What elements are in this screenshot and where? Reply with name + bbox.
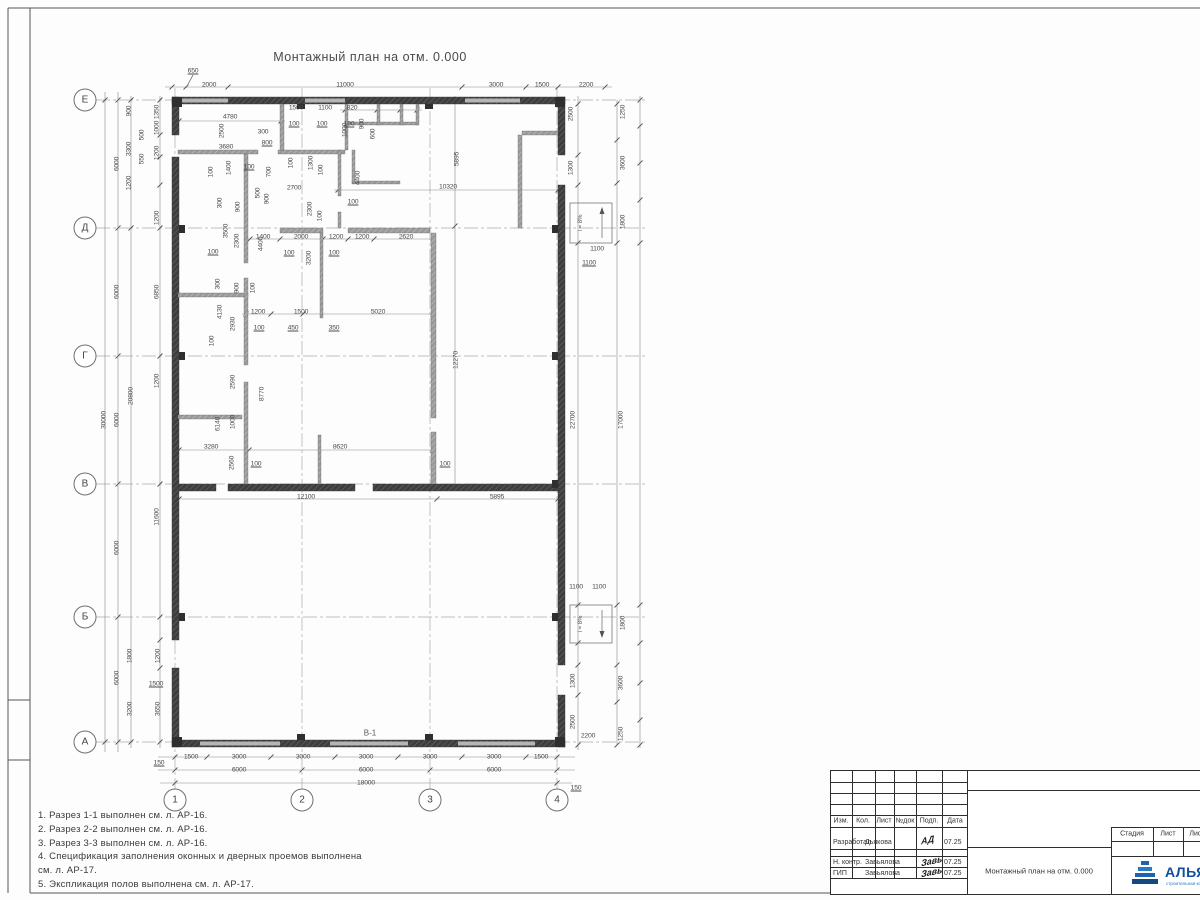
dimension-label: 11000 [336, 82, 353, 89]
dimension-label: 100 [317, 211, 324, 222]
dimension-label: 1100 [590, 246, 604, 253]
dimension-label: 4400 [355, 171, 362, 185]
dimension-label: 12270 [453, 351, 460, 369]
grid-axis-bubble: Д [74, 217, 97, 240]
page-title: Монтажный план на отм. 0.000 [273, 50, 467, 64]
dimension-label: 1350 [154, 105, 161, 119]
drawing-sheet: Монтажный план на отм. 0.000 65020001100… [0, 0, 1200, 900]
dimension-label: 22700 [570, 411, 577, 429]
tb-col-list: Лист [876, 818, 891, 825]
dimension-label: 1300 [308, 156, 315, 170]
note-line: 4. Спецификация заполнения оконных и две… [38, 850, 362, 864]
dimension-label: 20800 [128, 387, 135, 405]
dimension-label: 8770 [259, 387, 266, 401]
dimension-label: 12100 [297, 494, 315, 501]
dimension-label: 3200 [127, 702, 134, 716]
dimension-label: 1100 [569, 584, 583, 591]
dimension-label: 3600 [618, 676, 625, 690]
ramp-slope-label-bottom: i = 8% [578, 616, 584, 633]
dimension-label: 820 [347, 105, 358, 112]
grid-axis-bubble: Б [74, 606, 97, 629]
grid-axis-bubble: 3 [419, 789, 442, 812]
grid-axis-bubble: Г [74, 345, 97, 368]
dimension-label: 1100 [592, 584, 606, 591]
dimension-label: 900 [359, 119, 366, 130]
dimension-label: 100 [208, 249, 219, 256]
dimension-label: 1000 [342, 123, 349, 137]
dimension-label: 2620 [399, 234, 413, 241]
dimension-label: 1200 [251, 309, 265, 316]
dimension-label: 18000 [357, 780, 375, 787]
dimension-label: 6000 [114, 285, 121, 299]
dimension-label: 1250 [620, 105, 627, 119]
dimension-label: 3000 [232, 754, 246, 761]
dimension-label: 100 [254, 325, 265, 332]
dimension-label: 6000 [114, 541, 121, 555]
dimension-label: 8620 [333, 444, 347, 451]
dimension-label: 6000 [114, 671, 121, 685]
dimension-label: 600 [370, 129, 377, 140]
dimension-label: 1500 [294, 309, 308, 316]
dimension-label: 150 [154, 760, 165, 767]
dimension-label: 6000 [359, 767, 373, 774]
dimension-label: 3300 [126, 142, 133, 156]
dimension-label: 1200 [154, 146, 161, 160]
dimension-label: 350 [329, 325, 340, 332]
dimension-label: 2500 [219, 124, 226, 138]
dimension-label: 1800 [620, 616, 627, 630]
dimension-label: 6000 [114, 157, 121, 171]
dimension-label: 5895 [490, 494, 504, 501]
dimension-label: 1800 [127, 649, 134, 663]
dimension-label: 3680 [219, 144, 233, 151]
dimension-label: 2560 [229, 456, 236, 470]
dimension-label: 3200 [306, 251, 313, 265]
dimension-label: 100 [209, 336, 216, 347]
dimension-label: 1000 [154, 121, 161, 135]
alliance-logo-icon [1129, 859, 1161, 889]
dimension-label: 300 [215, 279, 222, 290]
dimension-label: 1100 [318, 105, 332, 112]
dimension-label: 30000 [101, 411, 108, 429]
dimension-label: 900 [234, 283, 241, 294]
dimension-label: 150 [571, 785, 582, 792]
dimension-label: 2000 [202, 82, 216, 89]
dimension-label: 3000 [296, 754, 310, 761]
note-line: 5. Экспликация полов выполнена см. л. АР… [38, 878, 362, 892]
note-line: см. л. АР-17. [38, 864, 362, 878]
alliance-logo-name: АЛЬЯНС [1165, 864, 1200, 880]
dimension-label: 300 [217, 198, 224, 209]
grid-axis-bubble: 4 [546, 789, 569, 812]
dimension-label: 3000 [423, 754, 437, 761]
dimension-label: 3500 [223, 224, 230, 238]
dimension-label: 6140 [215, 417, 222, 431]
notes-block: 1. Разрез 1-1 выполнен см. л. АР-16. 2. … [38, 809, 362, 892]
dimension-label: 800 [262, 140, 273, 147]
note-line: 2. Разрез 2-2 выполнен см. л. АР-16. [38, 823, 362, 837]
dimension-label: 900 [235, 202, 242, 213]
floor-mark-label: В-1 [364, 729, 376, 738]
dimension-label: 300 [258, 129, 269, 136]
dimension-label: 900 [264, 194, 271, 205]
dimension-label: 1200 [154, 374, 161, 388]
tb-col-data: Дата [947, 818, 963, 825]
dimension-label: 2000 [294, 234, 308, 241]
tb-col-ndok: №док [896, 818, 915, 825]
tb-col-podp: Подп. [920, 818, 939, 825]
dimension-label: 1200 [126, 176, 133, 190]
dimension-label: 100 [251, 461, 262, 468]
dimension-label: 6000 [232, 767, 246, 774]
dimension-label: 500 [255, 188, 262, 199]
dimension-label: 1100 [582, 260, 596, 267]
dimension-label: 2700 [287, 185, 301, 192]
tb-date: 07.25 [944, 839, 962, 846]
dimension-label: 1200 [329, 234, 343, 241]
dimension-label: 4780 [223, 114, 237, 121]
dimension-label: 1300 [570, 674, 577, 688]
dimension-label: 1400 [226, 161, 233, 175]
dimension-label: 100 [289, 121, 300, 128]
dimension-label: 900 [126, 106, 133, 117]
tb-date: 07.25 [944, 870, 962, 877]
tb-col-kol: Кол. [856, 818, 870, 825]
dimension-label: 100 [284, 250, 295, 257]
tb-doc-title: Монтажный план на отм. 0.000 [985, 867, 1093, 876]
tb-name: Завьялова [865, 859, 900, 866]
dimension-label: 2590 [230, 375, 237, 389]
dimension-label: 1200 [154, 211, 161, 225]
dimension-label: 10320 [439, 184, 457, 191]
grid-axis-bubble: В [74, 473, 97, 496]
ramps [186, 75, 612, 643]
dimension-label: 2200 [579, 82, 593, 89]
tb-sheets: Лист [1189, 831, 1200, 838]
dimension-label: 1200 [355, 234, 369, 241]
tb-name: Дьякова [865, 839, 892, 846]
dimension-label: 100 [250, 283, 257, 294]
tb-role: ГИП [833, 870, 847, 877]
dimension-label: 1800 [620, 215, 627, 229]
dimension-label: 1500 [534, 754, 548, 761]
dimension-label: 6000 [114, 413, 121, 427]
dimension-label: 5020 [371, 309, 385, 316]
dimension-label: 4130 [217, 305, 224, 319]
dimension-label: 100 [288, 158, 295, 169]
dimension-label: 3000 [489, 82, 503, 89]
dimension-label: 1500 [535, 82, 549, 89]
dimension-label: 1500 [289, 105, 303, 112]
dimension-label: 3600 [620, 156, 627, 170]
dimension-label: 450 [288, 325, 299, 332]
dimension-label: 2500 [568, 107, 575, 121]
floor-plan-drawing [0, 0, 1200, 900]
dimension-label: 2300 [307, 202, 314, 216]
note-line: 1. Разрез 1-1 выполнен см. л. АР-16. [38, 809, 362, 823]
dimension-label: 3650 [155, 702, 162, 716]
dimension-label: 1500 [184, 754, 198, 761]
ramp-slope-label-top: i = 8% [578, 215, 584, 232]
dimension-label: 100 [244, 164, 255, 171]
note-line: 3. Разрез 3-3 выполнен см. л. АР-16. [38, 837, 362, 851]
dimension-label: 2930 [230, 317, 237, 331]
tb-signature: АД [921, 835, 934, 845]
dimension-label: 500 [139, 130, 146, 141]
dimension-label: 700 [266, 167, 273, 178]
dimension-label: 100 [317, 121, 328, 128]
dimension-label: 550 [139, 154, 146, 165]
tb-col-izm: Изм. [834, 818, 849, 825]
dimension-label: 4400 [258, 237, 265, 251]
dimension-label: 5895 [454, 152, 461, 166]
tb-name: Завьялова [865, 870, 900, 877]
dimension-label: 100 [318, 165, 325, 176]
dimension-label: 1200 [155, 649, 162, 663]
dimension-label: 100 [329, 250, 340, 257]
grid-axis-bubble: Е [74, 89, 97, 112]
dimension-label: 6850 [154, 285, 161, 299]
dimension-label: 3280 [204, 444, 218, 451]
tb-role: Н. контр. [833, 859, 862, 866]
tb-signature: Завь [921, 867, 943, 877]
dimension-label: 6000 [487, 767, 501, 774]
dimension-label: 2300 [234, 234, 241, 248]
dimension-label: 650 [188, 68, 199, 75]
dimension-label: 17000 [618, 411, 625, 429]
tb-stage: Стадия [1120, 831, 1144, 838]
tb-date: 07.25 [944, 859, 962, 866]
dimension-label: 1300 [568, 161, 575, 175]
grid-axis-bubble: А [74, 731, 97, 754]
dimension-label: 100 [208, 167, 215, 178]
dimension-label: 1500 [149, 681, 163, 688]
tb-sheet: Лист [1160, 831, 1175, 838]
dimension-label: 100 [440, 461, 451, 468]
dimension-label: 2500 [570, 715, 577, 729]
dimension-label: 1000 [230, 415, 237, 429]
dimension-label: 100 [348, 199, 359, 206]
dimension-label: 1250 [618, 727, 625, 741]
dimension-label: 2200 [581, 733, 595, 740]
alliance-logo-subtitle: строительная компания [1166, 881, 1200, 886]
dimension-label: 3000 [359, 754, 373, 761]
dimension-label: 3000 [487, 754, 501, 761]
dimension-label: 11600 [154, 508, 161, 525]
title-block: Изм. Кол. Лист №док Подп. Дата Разработа… [830, 770, 1200, 895]
